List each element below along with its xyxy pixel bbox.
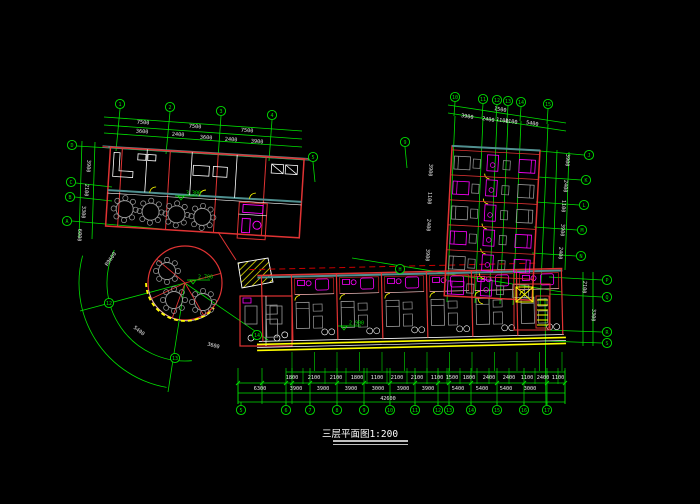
chair-icon xyxy=(374,328,380,334)
right-wing xyxy=(444,146,540,306)
grid-bubble-label: M xyxy=(580,228,583,234)
dim-label: 3900 xyxy=(424,249,431,262)
grid-bubble-label: 6 xyxy=(284,408,287,414)
dim-label: 3900 xyxy=(397,386,410,392)
desk-icon xyxy=(470,209,477,218)
grid-bubble-label: 12 xyxy=(494,98,500,104)
dim-label: 5400 xyxy=(500,386,513,392)
bed-pillow-line xyxy=(528,210,529,223)
dim-label: 3600 xyxy=(200,135,213,142)
bed-pillow-line xyxy=(453,256,454,269)
dim-label: 2100 xyxy=(391,375,404,381)
door-swing xyxy=(340,294,345,299)
bed-icon xyxy=(476,298,490,324)
dim-label: 42600 xyxy=(380,396,396,402)
toilet-icon xyxy=(432,277,439,282)
sink-icon xyxy=(490,163,495,168)
dim-label: 3300 xyxy=(80,206,87,219)
chair-icon xyxy=(322,329,328,335)
bed-icon xyxy=(515,234,532,248)
bed-pillow-line xyxy=(457,181,458,194)
dim-label: 2400 xyxy=(425,219,432,232)
floorplan-drawing: 123459HDCBA101112131415JKLMNPQRS12131456… xyxy=(0,0,700,504)
dim-label: 1100 xyxy=(371,375,384,381)
door-swing xyxy=(483,199,488,204)
cabinet-icon xyxy=(448,301,457,308)
cabinet-icon xyxy=(493,300,502,307)
cabinet-icon xyxy=(313,304,322,311)
guest-room-module xyxy=(294,278,334,336)
dim-label: 1500 xyxy=(446,375,459,381)
guest-room-module xyxy=(384,276,424,334)
dim-label: 2400 xyxy=(557,247,564,260)
dim-label: 2400 xyxy=(503,375,516,381)
drawing-title-block: 三层平面图1:200 xyxy=(322,429,408,445)
drawing-title: 三层平面图1:200 xyxy=(322,429,398,440)
bed-icon xyxy=(517,184,534,198)
dim-label: 1100 xyxy=(552,375,565,381)
bed-icon xyxy=(519,159,536,173)
toilet-icon xyxy=(388,278,395,283)
dim-label: 2400 xyxy=(225,137,238,144)
grid-bubble-label: 14 xyxy=(254,333,260,339)
dim-label: 7500 xyxy=(241,128,254,135)
bed-icon xyxy=(454,156,471,170)
grid-bubble-label: K xyxy=(584,178,587,184)
dim-label: 1800 xyxy=(351,375,364,381)
door-swing xyxy=(484,174,489,179)
round-table xyxy=(153,257,180,284)
grid-bubble-label: 13 xyxy=(172,356,178,362)
sink-icon xyxy=(351,280,356,285)
stair-1 xyxy=(238,258,273,288)
sink-icon xyxy=(488,213,493,218)
grid-bubble-label: 17 xyxy=(544,408,550,414)
level-value: 2.700 xyxy=(198,275,213,281)
grid-bubble-label: 5 xyxy=(239,408,242,414)
dim-label: 3900 xyxy=(345,386,358,392)
bed-pillow-line xyxy=(531,160,532,173)
dim-label: 2100 xyxy=(83,184,90,197)
left-bay-fixtures xyxy=(266,305,288,338)
dim-label: 7500 xyxy=(137,120,150,127)
dim-label: 3900 xyxy=(564,154,571,167)
grid-bubble-label: S xyxy=(605,341,608,347)
grid-bubble-label: 11 xyxy=(412,408,418,414)
bathtub-icon xyxy=(405,277,418,288)
sink-icon xyxy=(486,238,491,243)
bed-pillow-line xyxy=(458,156,459,169)
dim-label: 3900 xyxy=(422,386,435,392)
grid-bubble-label: 14 xyxy=(518,100,524,106)
bathtub-icon xyxy=(540,274,553,285)
dim-label: 3000 xyxy=(524,386,537,392)
partition xyxy=(447,250,535,255)
door-swing xyxy=(480,249,485,254)
dim-label: 1100 xyxy=(560,200,567,213)
bathtub-icon xyxy=(316,279,329,290)
desk-icon xyxy=(538,311,547,323)
dim-label: 3600 xyxy=(136,129,149,136)
bed-pillow-line xyxy=(455,206,456,219)
bed-icon xyxy=(386,300,400,326)
grid-bubble-label: N xyxy=(579,254,582,260)
dim-label: 1500 xyxy=(494,106,507,114)
dim-label: 3900 xyxy=(85,160,92,173)
dim-label: 3600 xyxy=(206,342,220,351)
desk-icon xyxy=(448,313,457,325)
bed-pillow-line xyxy=(454,231,455,244)
grid-bubble-label: 9 xyxy=(403,140,406,146)
grid-bubble-label: 16 xyxy=(521,408,527,414)
bed-icon xyxy=(296,302,310,328)
desk-icon xyxy=(493,312,502,324)
dim-label: 3900 xyxy=(559,224,566,237)
dim-label: 2400 xyxy=(537,375,550,381)
chair-icon xyxy=(412,327,418,333)
dim-label: 5400 xyxy=(526,120,539,128)
desk-icon xyxy=(473,159,480,168)
dim-label: 2100 xyxy=(581,281,588,294)
grid-bubble-label: 8 xyxy=(335,408,338,414)
bed-pillow-line xyxy=(451,281,452,294)
sink-icon xyxy=(396,279,401,284)
bathtub-icon xyxy=(360,278,373,289)
dim-label: 5400 xyxy=(476,386,489,392)
dim-label: 5400 xyxy=(132,325,146,337)
dim-label: 1800 xyxy=(463,375,476,381)
chair-icon xyxy=(554,324,560,330)
sink-icon xyxy=(489,188,494,193)
dim-label: R9600 xyxy=(104,251,118,267)
kitchen-fixtures xyxy=(112,147,298,201)
level-triangle-icon xyxy=(341,326,347,330)
dim-label: 6300 xyxy=(254,386,267,392)
toilet-icon xyxy=(298,280,305,285)
round-table xyxy=(160,286,187,313)
chair-icon xyxy=(367,328,373,334)
bed-icon xyxy=(447,281,464,295)
grid-bubble-label: 4 xyxy=(270,113,273,119)
grid-bubble-label: C xyxy=(69,180,72,186)
sink-icon xyxy=(306,281,311,286)
dim-label: 1100 xyxy=(521,375,534,381)
level-value: 2.900 xyxy=(349,321,364,327)
dim-label: 3000 xyxy=(372,386,385,392)
dim-label: 3900 xyxy=(290,386,303,392)
bottom-wing xyxy=(249,262,566,350)
grid-bubble-label: 13 xyxy=(505,99,511,105)
bed-icon xyxy=(450,231,467,245)
door-swing xyxy=(478,298,483,303)
toilet-icon xyxy=(343,279,350,284)
grid-bubble-label: 12 xyxy=(435,408,441,414)
bed-icon xyxy=(431,299,445,325)
grid-bubble-label: 15 xyxy=(494,408,500,414)
grid-bubble-label: D xyxy=(70,143,73,149)
dim-label: 1800 xyxy=(286,375,299,381)
dim-label: 6000 xyxy=(76,229,83,242)
toilet-icon xyxy=(522,275,529,280)
dim-label: 2400 xyxy=(172,132,185,139)
dim-label: 5400 xyxy=(452,386,465,392)
dim-label: 1100 xyxy=(431,375,444,381)
dim-label: 2100 xyxy=(308,375,321,381)
desk-icon xyxy=(466,284,473,293)
grid-bubble-label: 15 xyxy=(545,102,551,108)
dim-label: 2100 xyxy=(330,375,343,381)
desk-icon xyxy=(313,316,322,328)
grid-bubble-label: J xyxy=(587,153,590,159)
dim-label: 3900 xyxy=(317,386,330,392)
door-swing xyxy=(295,295,300,300)
banquet-hall xyxy=(146,232,236,321)
bed-pillow-line xyxy=(527,235,528,248)
level-value: 3.300 xyxy=(186,191,201,197)
desk-icon xyxy=(503,161,510,170)
bed-icon xyxy=(453,181,470,195)
door-swing xyxy=(430,292,435,297)
grid-bubble-label: 7 xyxy=(308,408,311,414)
dim-label: 1100 xyxy=(426,192,433,205)
dim-label: 2100 xyxy=(411,375,424,381)
dim-label: 2400 xyxy=(562,180,569,193)
desk-icon xyxy=(469,234,476,243)
grid-bubble-label: 11 xyxy=(480,97,486,103)
dim-label: 3900 xyxy=(461,113,474,121)
grid-bubble-label: A xyxy=(65,219,68,225)
grid-bubble-label: 13 xyxy=(446,408,452,414)
door-swing xyxy=(482,224,487,229)
bed-icon xyxy=(516,209,533,223)
bathtub-icon xyxy=(495,275,508,286)
grid-bubble-label: 2 xyxy=(168,105,171,111)
bathroom-fixtures xyxy=(241,204,263,233)
dim-label: 3300 xyxy=(590,309,597,322)
dim-label: 2400 xyxy=(482,116,495,124)
grid-bubble-label: 5 xyxy=(311,155,314,161)
grid-bubble-label: 10 xyxy=(387,408,393,414)
chair-icon xyxy=(419,327,425,333)
grid-bubble-label: 3 xyxy=(219,109,222,115)
bed-icon xyxy=(451,206,468,220)
door-swing xyxy=(385,293,390,298)
desk-icon xyxy=(403,314,412,326)
dim-label: 7500 xyxy=(189,124,202,131)
dim-label: 3900 xyxy=(427,164,434,177)
grid-bubble-label: L xyxy=(582,203,585,209)
desk-icon xyxy=(468,259,475,268)
cabinet-icon xyxy=(403,302,412,309)
partition xyxy=(445,275,533,280)
desk-icon xyxy=(472,184,479,193)
grid-bubble-label: 10 xyxy=(452,95,458,101)
left-wing xyxy=(97,147,312,243)
chair-icon xyxy=(502,325,508,331)
grid-bubble-label: 1 xyxy=(118,102,121,108)
cabinet-icon xyxy=(358,303,367,310)
dim-label: 2400 xyxy=(483,375,496,381)
grid-bubble-label: H xyxy=(398,267,401,273)
dim-label: 1100 xyxy=(505,118,518,126)
level-markers: 3.3002.7002.900 xyxy=(175,191,364,331)
bed-icon xyxy=(449,256,466,270)
chair-icon xyxy=(464,326,470,332)
radial-partitions xyxy=(152,259,221,318)
grid-bubble-label: 12 xyxy=(106,301,112,307)
connector-rooms xyxy=(240,296,292,346)
grid-bubble-label: 9 xyxy=(362,408,365,414)
chair-icon xyxy=(329,329,335,335)
grid-bubble-label: 14 xyxy=(468,408,474,414)
cad-viewport: 123459HDCBA101112131415JKLMNPQRS12131456… xyxy=(0,0,700,504)
dim-label: 3900 xyxy=(251,139,264,146)
bed-pillow-line xyxy=(529,185,530,198)
chair-icon xyxy=(457,326,463,332)
grid-bubble-label: Q xyxy=(605,295,608,301)
level-triangle-icon xyxy=(178,196,184,200)
grid-bubble-label: P xyxy=(605,278,608,284)
grid-bubble-label: B xyxy=(68,195,71,201)
sink-icon xyxy=(485,263,490,268)
